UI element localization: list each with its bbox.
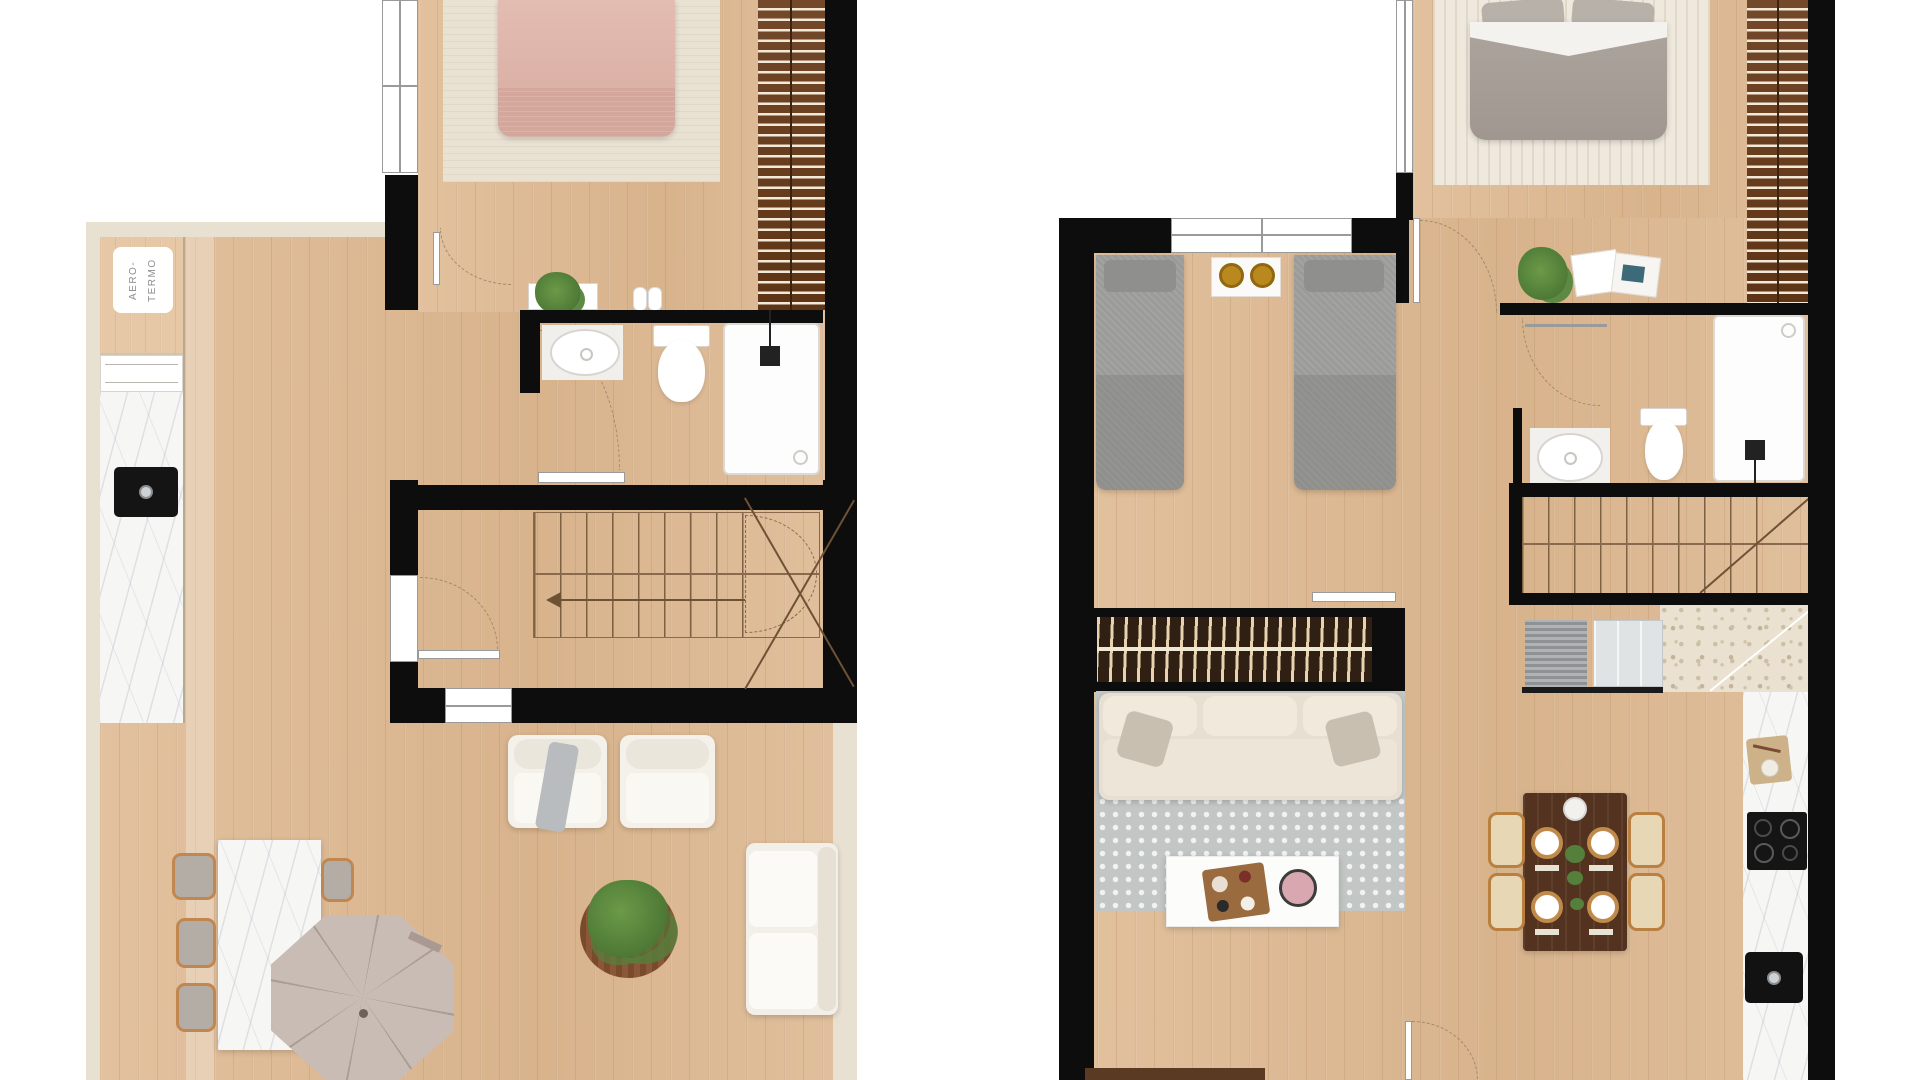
wall	[1808, 0, 1835, 1080]
blanket-fold	[1096, 375, 1184, 490]
staircase	[1522, 497, 1808, 593]
napkin	[1589, 865, 1613, 871]
sofa-back-cushion	[1203, 696, 1297, 736]
sofa	[1099, 693, 1402, 800]
place-setting	[1531, 891, 1563, 923]
cooktop	[1747, 812, 1807, 870]
place-setting	[1587, 891, 1619, 923]
burner	[1754, 843, 1774, 863]
burner	[1782, 845, 1798, 861]
burner	[1754, 819, 1772, 837]
door-jamb	[1413, 218, 1420, 303]
coffee-table	[1166, 856, 1339, 927]
wall	[1059, 218, 1094, 1080]
twin-bed	[1096, 255, 1184, 490]
faucet-icon	[1767, 971, 1781, 985]
blanket-fold	[1294, 375, 1396, 490]
wall	[1509, 593, 1835, 605]
wall	[1509, 483, 1835, 497]
burner	[1780, 819, 1800, 839]
window-mullion	[1261, 219, 1263, 252]
stair-midline	[1522, 543, 1808, 545]
sliding-door	[1312, 592, 1396, 602]
exterior-void	[1059, 0, 1396, 218]
glass-partition	[1593, 620, 1663, 687]
wall	[1513, 408, 1522, 488]
floorplan-render: AERO- TERMO	[0, 0, 1920, 1080]
pillow	[1104, 260, 1176, 292]
wardrobe	[1747, 0, 1810, 303]
twin-bed	[1294, 255, 1396, 490]
tray-cup	[1238, 870, 1252, 884]
floorplan-unit-2	[0, 0, 1920, 1080]
wardrobe-divider	[1777, 0, 1779, 303]
shower-pipe	[1754, 460, 1756, 485]
magazines	[1611, 252, 1662, 297]
entry-floor	[1660, 605, 1810, 692]
tray-cup	[1240, 896, 1256, 912]
wall	[1509, 497, 1522, 605]
dining-chair	[1628, 873, 1665, 931]
place-setting	[1531, 827, 1563, 859]
shower-drain	[1781, 323, 1796, 338]
magazine-art	[1621, 264, 1645, 283]
basin-drain	[1564, 452, 1577, 465]
napkin	[1535, 865, 1559, 871]
dining-chair	[1488, 873, 1525, 931]
wall	[1500, 303, 1835, 315]
door-leaf	[1405, 1021, 1412, 1080]
napkin	[1535, 929, 1559, 935]
partition-rail	[1097, 647, 1372, 651]
slatted-partition	[1097, 617, 1372, 682]
toilet-bowl	[1645, 420, 1683, 480]
window	[1396, 0, 1413, 173]
serving-tray	[1202, 862, 1271, 922]
pillow	[1304, 260, 1384, 292]
teapot-icon	[1563, 797, 1587, 821]
dessert-plate	[1279, 869, 1317, 907]
window-mullion	[1404, 1, 1406, 172]
tray-cup	[1216, 899, 1230, 913]
dining-chair	[1628, 812, 1665, 868]
sideboard	[1085, 1068, 1265, 1080]
flowers-icon	[1565, 845, 1585, 863]
tray-cup	[1211, 875, 1229, 893]
fridge	[1525, 620, 1587, 688]
bowl-icon	[1760, 758, 1780, 778]
potted-plant-icon	[1518, 247, 1568, 300]
shower-head-icon	[1745, 440, 1765, 460]
place-setting	[1587, 827, 1619, 859]
wall	[1396, 253, 1409, 303]
knife-icon	[1753, 744, 1781, 753]
napkin	[1589, 929, 1613, 935]
gold-tray-icon	[1250, 263, 1275, 288]
dining-chair	[1488, 812, 1525, 868]
dining-table	[1523, 793, 1627, 951]
gold-tray-icon	[1219, 263, 1244, 288]
wall	[1396, 173, 1413, 220]
window	[1171, 218, 1352, 253]
cutting-board	[1746, 735, 1793, 785]
stair-treads	[1522, 497, 1760, 593]
